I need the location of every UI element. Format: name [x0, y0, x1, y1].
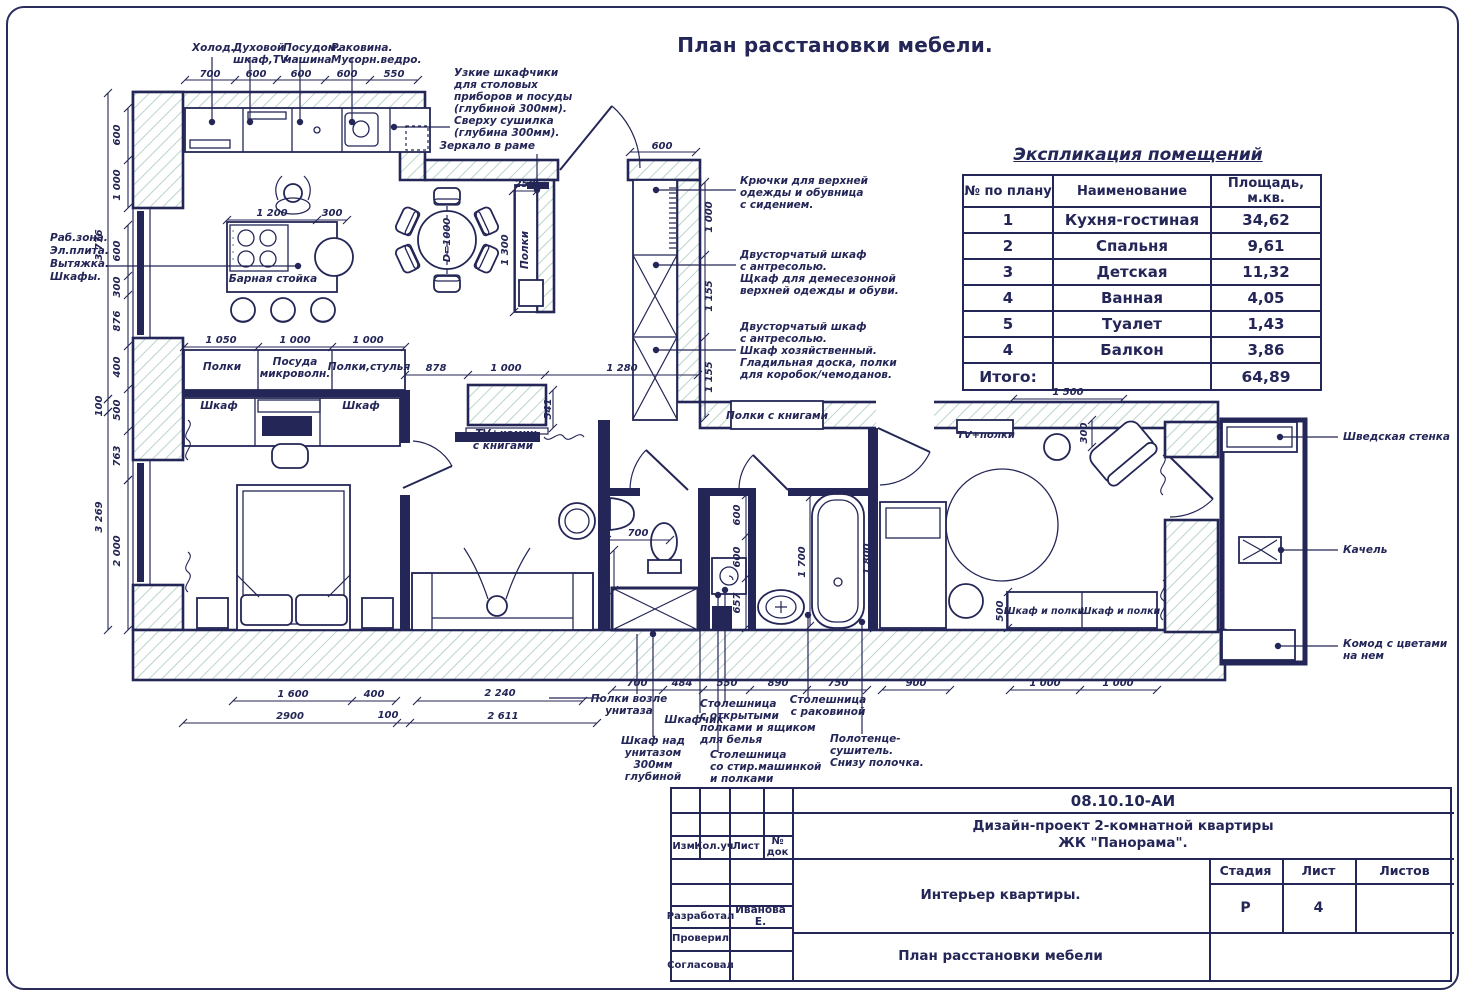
legend-header-name: Наименование — [1053, 175, 1211, 207]
leader-dot — [653, 262, 659, 268]
plan-text: 484 — [671, 678, 693, 689]
plan-text: Столешница — [700, 698, 776, 710]
plan-text: 2 240 — [484, 688, 515, 699]
leader-dot — [349, 119, 355, 125]
drawing-sheet: { "page_title": "План расстановки мебели… — [0, 0, 1469, 1000]
legend-header-area: Площадь, м.кв. — [1211, 175, 1321, 207]
plan-text: 3 776 — [94, 229, 105, 260]
plan-text: Мусорн.ведро. — [331, 54, 421, 66]
col-koluch: Кол.уч — [699, 835, 729, 858]
room-name: Туалет — [1053, 311, 1211, 337]
plan-text: Холод. — [191, 42, 235, 54]
legend-total-value: 64,89 — [1211, 363, 1321, 390]
plan-text: 2 000 — [112, 535, 123, 566]
plan-text: 600 — [337, 69, 358, 80]
plan-text: для столовых — [453, 79, 539, 91]
room-area: 1,43 — [1211, 311, 1321, 337]
pouf — [949, 584, 983, 618]
plan-text: шкаф,TV — [233, 54, 289, 66]
plan-text: 1 155 — [704, 361, 715, 392]
balcony — [1222, 422, 1297, 660]
toilet — [651, 523, 677, 561]
room-legend: Экспликация помещений № по плану Наимено… — [962, 145, 1314, 391]
leader-dot — [295, 263, 301, 269]
plan-text: TV+полки — [957, 430, 1015, 441]
plan-text: (глубиной 300мм). — [454, 103, 567, 115]
title-block: 08.10.10-АИ Дизайн-проект 2-комнатной кв… — [670, 787, 1452, 982]
plan-text: с антресолью. — [740, 261, 827, 273]
plan-text: Шведская стенка — [1343, 431, 1450, 443]
plan-text: 550 — [384, 69, 405, 80]
plan-text: 890 — [768, 678, 789, 689]
doc-code: 08.10.10-АИ — [792, 789, 1454, 812]
plan-text: 500 — [995, 601, 1006, 622]
room-area: 11,32 — [1211, 259, 1321, 285]
plan-text: Двусторчатый шкаф — [739, 249, 867, 261]
dimension-line — [104, 408, 112, 634]
room-number: 4 — [963, 285, 1053, 311]
plan-text: 600 — [652, 141, 673, 152]
laundry-cabinet — [712, 606, 732, 630]
hall-wardrobe — [633, 180, 677, 420]
legend-total-label: Итого: — [963, 363, 1053, 390]
legend-row: 2 Спальня 9,61 — [963, 233, 1321, 259]
plan-text: Снизу полочка. — [830, 757, 924, 769]
tb-line — [672, 883, 792, 885]
leader-dot — [722, 587, 728, 593]
leader-dot — [650, 631, 656, 637]
plan-text: Шкаф — [342, 400, 380, 412]
project-line1: Дизайн-проект 2-комнатной квартиры — [972, 818, 1273, 835]
plan-text: Узкие шкафчики — [454, 67, 559, 79]
room-name: Ванная — [1053, 285, 1211, 311]
room-number: 3 — [963, 259, 1053, 285]
room-area: 34,62 — [1211, 207, 1321, 233]
corner-sink — [610, 498, 634, 530]
plan-text: 900 — [906, 678, 927, 689]
plan-text: 1 000 — [112, 169, 123, 200]
plan-text: 2900 — [276, 711, 304, 722]
sheet-name: План расстановки мебели — [792, 932, 1209, 980]
bench — [272, 444, 308, 468]
plan-text: 1 200 — [256, 208, 287, 219]
plan-text: машина — [283, 54, 332, 66]
stage-label: Стадия — [1209, 858, 1282, 883]
plan-text: 1 050 — [205, 335, 236, 346]
plan-text: Полотенце- — [830, 733, 901, 745]
project-name: Дизайн-проект 2-комнатной квартиры ЖК "П… — [792, 812, 1454, 858]
leader-dot — [697, 605, 703, 611]
plan-text: 1 280 — [606, 363, 637, 374]
plan-text: D=1000 — [442, 218, 453, 263]
plan-text: 2 611 — [487, 711, 518, 722]
legend-row: 4 Балкон 3,86 — [963, 337, 1321, 363]
plan-text: со стир.машинкой — [710, 761, 822, 773]
plan-text: 600 — [732, 505, 743, 526]
small-cabinet — [519, 280, 543, 306]
plan-text: Сверху сушилка — [454, 115, 554, 127]
agreed-label: Согласовал — [672, 950, 729, 980]
plan-text: 3 269 — [94, 501, 105, 532]
room-name: Балкон — [1053, 337, 1211, 363]
pillow — [241, 595, 292, 625]
legend-row: 5 Туалет 1,43 — [963, 311, 1321, 337]
plan-text: 600 — [732, 547, 743, 568]
plan-text: 300 — [322, 208, 343, 219]
sheet-label: Лист — [1282, 858, 1355, 883]
kids-bed — [880, 502, 946, 628]
plan-text: 600 — [291, 69, 312, 80]
room-name: Кухня-гостиная — [1053, 207, 1211, 233]
plan-text: 1 000 — [352, 335, 383, 346]
room-name: Детская — [1053, 259, 1211, 285]
plan-text: 700 — [627, 678, 648, 689]
plan-text: 400 — [363, 689, 385, 700]
nightstand — [197, 598, 228, 628]
plan-text: 1 000 — [704, 201, 715, 232]
plan-text: на нем — [1343, 650, 1384, 662]
plan-text: 1 000 — [1102, 678, 1133, 689]
toilet-tank — [648, 560, 681, 573]
plan-text: 100 — [94, 396, 105, 417]
plan-text: (глубина 300мм). — [454, 127, 559, 139]
plan-text: Комод с цветами — [1343, 638, 1448, 650]
plan-text: Шкаф и полки — [1004, 606, 1085, 617]
legend-row: 3 Детская 11,32 — [963, 259, 1321, 285]
bathtub — [812, 494, 864, 628]
leader-dot — [715, 592, 721, 598]
bedroom — [184, 350, 410, 630]
plan-text: Полки — [203, 361, 242, 373]
legend-total-row: Итого: 64,89 — [963, 363, 1321, 390]
plan-text: Полки,стулья — [328, 361, 411, 373]
plan-text: 1 000 — [279, 335, 310, 346]
plan-text: 600 — [112, 125, 123, 146]
leader-dot — [805, 612, 811, 618]
leader-dot — [297, 119, 303, 125]
plan-text: Зеркало в раме — [440, 140, 535, 152]
plan-text: Шкаф — [200, 400, 238, 412]
plan-text: 400 — [112, 357, 123, 379]
plan-text: Барная стойка — [229, 273, 317, 285]
leader-dot — [209, 119, 215, 125]
legend-total-spacer — [1053, 363, 1211, 390]
col-list: Лист — [729, 835, 763, 858]
plan-text: приборов и посуды — [454, 91, 573, 103]
room-area: 4,05 — [1211, 285, 1321, 311]
plan-text: Щкаф для демесезонной — [740, 273, 896, 285]
plan-text: Шкаф и полки — [1080, 606, 1161, 617]
leader-dot — [653, 347, 659, 353]
plan-text: 500 — [112, 400, 123, 421]
plan-text: Качель — [1343, 544, 1388, 556]
plan-text: 750 — [828, 678, 849, 689]
plan-text: унитаза — [605, 705, 653, 717]
plan-text: унитазом — [625, 747, 682, 759]
plan-text: 550 — [717, 678, 738, 689]
plan-text: 1 000 — [1029, 678, 1060, 689]
plan-text: с открытыми — [700, 710, 779, 722]
plan-text: Шкафы. — [50, 271, 101, 283]
sheet-value: 4 — [1282, 883, 1355, 932]
plan-text: с антресолью. — [740, 333, 827, 345]
room-number: 5 — [963, 311, 1053, 337]
plan-text: 600 — [112, 241, 123, 262]
plan-text: для белья — [699, 734, 762, 746]
plan-text: с сидением. — [740, 199, 813, 211]
leader-dot — [247, 119, 253, 125]
plan-text: 876 — [112, 311, 123, 332]
leader-dot — [1275, 643, 1281, 649]
plan-text: Шкаф над — [621, 735, 685, 747]
plan-text: 1 155 — [704, 280, 715, 311]
legend-header-row: № по плану Наименование Площадь, м.кв. — [963, 175, 1321, 207]
plan-text: 1 300 — [500, 234, 511, 265]
plan-text: Столешница — [790, 694, 866, 706]
leader-dot — [653, 187, 659, 193]
toilet-room — [610, 498, 698, 630]
plan-text: 250 — [515, 179, 536, 190]
legend-row: 1 Кухня-гостиная 34,62 — [963, 207, 1321, 233]
plan-text: 300 — [600, 561, 611, 582]
play-rug — [946, 469, 1058, 581]
leader-dot — [859, 619, 865, 625]
dimension-line — [124, 104, 132, 212]
plan-text: 100 — [378, 710, 399, 721]
plan-text: 700 — [200, 69, 221, 80]
plan-text: Посуда — [273, 356, 318, 368]
stool — [1044, 434, 1070, 460]
sheets-label: Листов — [1355, 858, 1454, 883]
developed-label: Разработал — [672, 905, 729, 927]
developed-value: Иванова Е. — [729, 905, 792, 927]
plan-text: Раковина. — [331, 42, 392, 54]
plan-text: 1 700 — [797, 546, 808, 577]
plan-text: Крючки для верхней — [740, 175, 869, 187]
plan-text: Духовой — [232, 42, 285, 54]
legend-table: № по плану Наименование Площадь, м.кв. 1… — [962, 174, 1322, 391]
plan-text: одежды и обувница — [740, 187, 863, 199]
leader-dot — [1277, 434, 1283, 440]
pillow — [296, 595, 347, 625]
plan-text: с книгами — [473, 440, 534, 452]
plan-text: Столешница — [710, 749, 786, 761]
plan-text: 700 — [628, 528, 649, 539]
room-area: 3,86 — [1211, 337, 1321, 363]
room-number: 1 — [963, 207, 1053, 233]
plan-text: Полки возле — [591, 693, 668, 705]
plan-text: Шкаф хозяйственный. — [740, 345, 877, 357]
col-ndok: № док — [763, 835, 792, 858]
bar-counter — [227, 222, 353, 322]
plan-text: 1 600 — [277, 689, 308, 700]
person-head — [487, 596, 507, 616]
plan-text: 300 — [1079, 423, 1090, 444]
plan-text: 763 — [112, 446, 123, 467]
bathroom — [758, 494, 864, 628]
plan-text: глубиной — [625, 771, 682, 783]
dimension-line — [124, 476, 132, 634]
plan-text: 1 000 — [490, 363, 521, 374]
plan-text: 600 — [246, 69, 267, 80]
stage-value: Р — [1209, 883, 1282, 932]
legend-header-num: № по плану — [963, 175, 1053, 207]
commode — [1222, 630, 1295, 660]
plan-text: полками и ящиком — [700, 722, 816, 734]
plan-text: верхней одежды и обуви. — [740, 285, 899, 297]
tv — [262, 416, 312, 436]
plan-text: микроволн. — [260, 368, 331, 380]
plan-text: Гладильная доска, полки — [740, 357, 897, 369]
plan-text: и полками — [710, 773, 774, 785]
plan-text: Полки — [519, 230, 531, 269]
legend-title: Экспликация помещений — [962, 145, 1314, 165]
checked-label: Проверил — [672, 927, 729, 950]
plan-text: сушитель. — [830, 745, 893, 757]
dimension-line — [124, 221, 132, 484]
plan-text: 300мм — [633, 759, 673, 771]
leader-dot — [391, 124, 397, 130]
legend-row: 4 Ванная 4,05 — [963, 285, 1321, 311]
plan-text: Двусторчатый шкаф — [739, 321, 867, 333]
plan-text: 878 — [426, 363, 447, 374]
leader-dot — [1278, 547, 1284, 553]
interior-title: Интерьер квартиры. — [792, 858, 1209, 932]
plan-text: 657 — [732, 593, 743, 614]
project-line2: ЖК "Панорама". — [1058, 835, 1187, 852]
nightstand — [362, 598, 393, 628]
room-number: 2 — [963, 233, 1053, 259]
plan-text: для коробок/чемоданов. — [739, 369, 892, 381]
plan-text: 300 — [112, 277, 123, 298]
room-number: 4 — [963, 337, 1053, 363]
room-name: Спальня — [1053, 233, 1211, 259]
plan-text: 1 800 — [862, 543, 873, 574]
plan-text: 541 — [543, 399, 554, 420]
sofa-room — [412, 503, 595, 630]
plan-text: TV+камин — [475, 428, 537, 440]
plan-text: с раковиной — [791, 706, 866, 718]
room-area: 9,61 — [1211, 233, 1321, 259]
plan-text: Полки с книгами — [726, 410, 829, 422]
